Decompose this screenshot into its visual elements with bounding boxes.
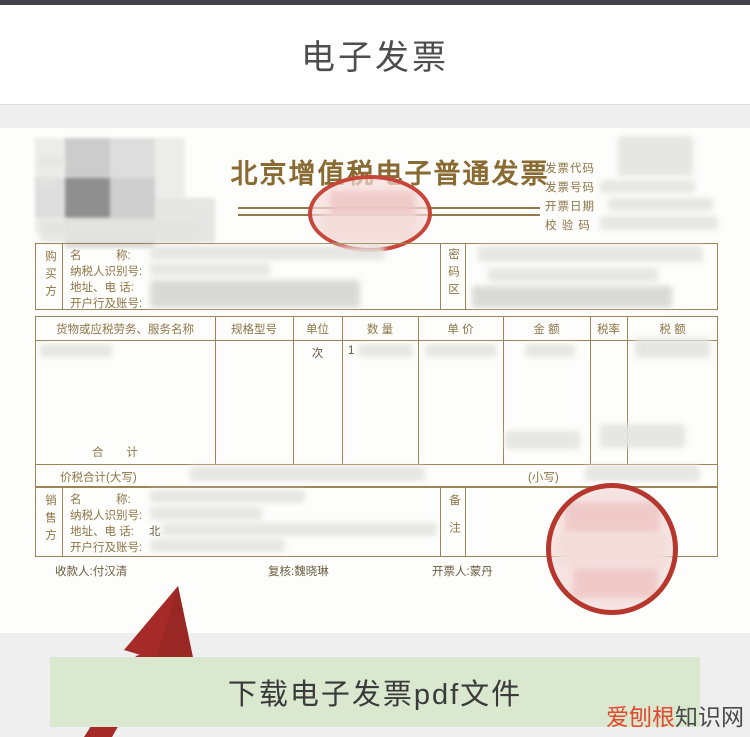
redacted-value bbox=[38, 176, 56, 185]
redacted-value bbox=[162, 523, 437, 536]
redacted-value bbox=[150, 507, 262, 520]
buyer-side-label: 购买方 bbox=[42, 250, 58, 303]
invoice-preview: 北京增值税电子普通发票 发票代码 发票号码 开票日期 校 验 码 购买方 名 称… bbox=[0, 128, 750, 633]
col-header-qty: 数 量 bbox=[342, 321, 418, 337]
items-table bbox=[35, 316, 718, 487]
app-screen: 电子发票 北京增值税电子普通发票 发票代码 发票号码 开票日期 校 验 bbox=[0, 0, 750, 737]
password-area-label: 密码区 bbox=[445, 248, 461, 301]
password-divider-left bbox=[440, 243, 441, 310]
table-header-rule bbox=[35, 340, 718, 341]
seller-address-label: 地址、电 话: bbox=[70, 523, 134, 539]
redacted-value bbox=[40, 344, 112, 357]
reviewer-value: 魏晓琳 bbox=[294, 566, 329, 578]
seller-bank-label: 开户行及账号: bbox=[70, 539, 142, 555]
buyer-name-label: 名 称: bbox=[70, 247, 131, 263]
redacted-value bbox=[600, 180, 695, 193]
redacted-value bbox=[608, 198, 713, 211]
watermark-red-text: 爱刨根 bbox=[606, 704, 675, 730]
col-header-unit: 单位 bbox=[293, 321, 342, 337]
col-header-name: 货物或应税劳务、服务名称 bbox=[40, 321, 210, 337]
col-header-amount: 金 额 bbox=[503, 321, 590, 337]
redacted-value bbox=[600, 424, 685, 448]
redacted-value bbox=[150, 539, 285, 552]
buyer-address-label: 地址、电 话: bbox=[70, 279, 134, 295]
col-line bbox=[590, 316, 591, 464]
page-title: 电子发票 bbox=[301, 30, 449, 79]
check-code-label: 校 验 码 bbox=[545, 217, 591, 233]
invoice-code-label: 发票代码 bbox=[545, 160, 595, 176]
col-line bbox=[342, 316, 343, 464]
col-header-taxrate: 税率 bbox=[590, 321, 627, 337]
redacted-value bbox=[150, 490, 305, 503]
red-round-stamp bbox=[546, 483, 678, 615]
invoice-number-label: 发票号码 bbox=[545, 179, 595, 195]
buyer-divider bbox=[62, 243, 63, 310]
redacted-value bbox=[358, 344, 413, 357]
redacted-value bbox=[190, 466, 425, 481]
col-line bbox=[215, 316, 216, 464]
col-line bbox=[503, 316, 504, 464]
redacted-value bbox=[505, 431, 580, 449]
remark-divider-right bbox=[465, 487, 466, 557]
col-header-price: 单 价 bbox=[418, 321, 503, 337]
redacted-value bbox=[150, 246, 385, 260]
red-oval-stamp bbox=[308, 175, 432, 252]
tax-total-small-label: (小写) bbox=[528, 469, 559, 485]
site-watermark: 爱刨根知识网 bbox=[606, 698, 744, 732]
col-header-tax: 税 额 bbox=[627, 321, 718, 337]
seller-taxid-label: 纳税人识别号: bbox=[70, 507, 142, 523]
buyer-taxid-label: 纳税人识别号: bbox=[70, 263, 142, 279]
download-pdf-button[interactable]: 下载电子发票pdf文件 bbox=[50, 657, 700, 727]
remark-label: 备注 bbox=[446, 494, 462, 549]
redacted-value bbox=[618, 136, 693, 176]
remark-divider-left bbox=[440, 487, 441, 557]
redacted-value bbox=[472, 286, 672, 308]
invoice-date-label: 开票日期 bbox=[545, 198, 595, 214]
tax-total-label: 价税合计(大写) bbox=[60, 469, 137, 485]
buyer-bank-label: 开户行及账号: bbox=[70, 295, 142, 311]
item-quantity: 1 bbox=[348, 345, 354, 357]
seller-divider bbox=[62, 487, 63, 557]
drawer-field: 开票人:蒙丹 bbox=[432, 563, 493, 579]
redacted-value bbox=[525, 344, 575, 357]
drawer-label: 开票人: bbox=[432, 566, 470, 578]
redacted-value bbox=[425, 344, 497, 357]
item-unit: 次 bbox=[293, 345, 342, 361]
password-divider-right bbox=[465, 243, 466, 310]
redacted-value bbox=[150, 263, 270, 276]
col-line bbox=[418, 316, 419, 464]
redacted-value bbox=[40, 220, 200, 242]
drawer-value: 蒙丹 bbox=[470, 566, 493, 578]
col-line bbox=[293, 316, 294, 464]
reviewer-label: 复核: bbox=[268, 566, 294, 578]
seller-address-prefix: 北 bbox=[149, 523, 161, 539]
redacted-value bbox=[585, 465, 700, 481]
watermark-dark-text: 知识网 bbox=[675, 704, 744, 730]
seller-name-label: 名 称: bbox=[70, 491, 131, 507]
redacted-value bbox=[150, 280, 360, 308]
redacted-value bbox=[478, 246, 703, 262]
redacted-value bbox=[635, 338, 710, 358]
app-header: 电子发票 bbox=[0, 5, 750, 105]
total-label: 合 计 bbox=[92, 444, 138, 460]
download-pdf-label: 下载电子发票pdf文件 bbox=[228, 671, 522, 713]
redacted-value bbox=[600, 216, 718, 230]
redacted-value bbox=[488, 268, 658, 282]
col-header-spec: 规格型号 bbox=[215, 321, 293, 337]
reviewer-field: 复核:魏晓琳 bbox=[268, 563, 329, 579]
seller-side-label: 销售方 bbox=[42, 494, 58, 547]
redacted-value bbox=[38, 158, 64, 167]
